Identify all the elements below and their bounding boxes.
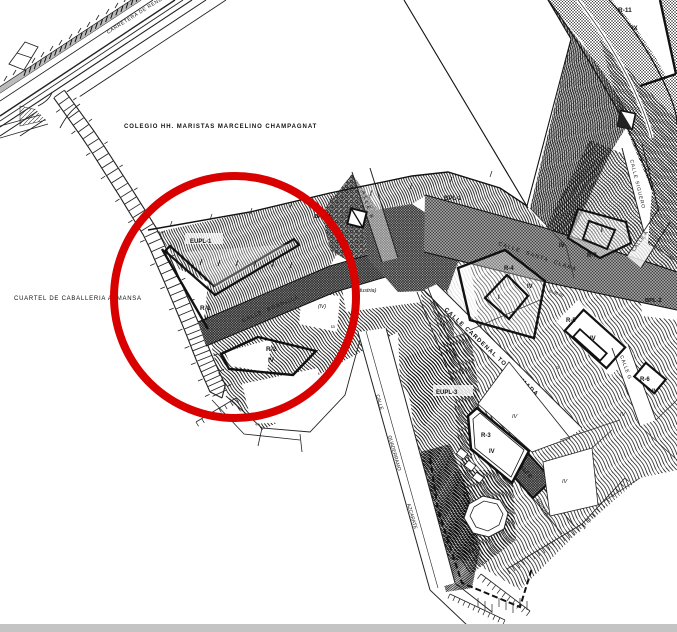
svg-text:EUPL-3: EUPL-3 bbox=[436, 390, 458, 396]
svg-text:BPL-2: BPL-2 bbox=[645, 298, 662, 304]
svg-text:EUPL-1: EUPL-1 bbox=[190, 239, 212, 245]
svg-text:R-11: R-11 bbox=[618, 7, 632, 14]
svg-text:R-6: R-6 bbox=[640, 377, 650, 383]
svg-text:(IV): (IV) bbox=[318, 304, 326, 310]
svg-text:IV: IV bbox=[489, 449, 495, 455]
svg-text:Ia: Ia bbox=[331, 324, 335, 329]
svg-text:R-1: R-1 bbox=[200, 305, 211, 312]
svg-text:IV: IV bbox=[527, 284, 533, 290]
svg-text:R-3: R-3 bbox=[481, 433, 491, 439]
svg-text:CUARTEL DE CABALLERIA ALMANSA: CUARTEL DE CABALLERIA ALMANSA bbox=[14, 296, 142, 302]
svg-text:R-4: R-4 bbox=[504, 266, 514, 272]
svg-text:COLEGIO HH. MARISTAS MARCELINO: COLEGIO HH. MARISTAS MARCELINO CHAMPAGNA… bbox=[124, 124, 317, 130]
svg-text:R-7: R-7 bbox=[587, 253, 597, 259]
svg-text:R-2: R-2 bbox=[266, 346, 277, 353]
svg-text:V: V bbox=[204, 315, 209, 322]
svg-text:R-5: R-5 bbox=[566, 318, 576, 324]
svg-text:IV: IV bbox=[590, 336, 596, 342]
svg-text:IV: IV bbox=[652, 389, 658, 395]
svg-text:BPL-1: BPL-1 bbox=[444, 196, 462, 202]
svg-text:IV: IV bbox=[268, 357, 275, 364]
svg-text:IX: IX bbox=[632, 26, 638, 32]
